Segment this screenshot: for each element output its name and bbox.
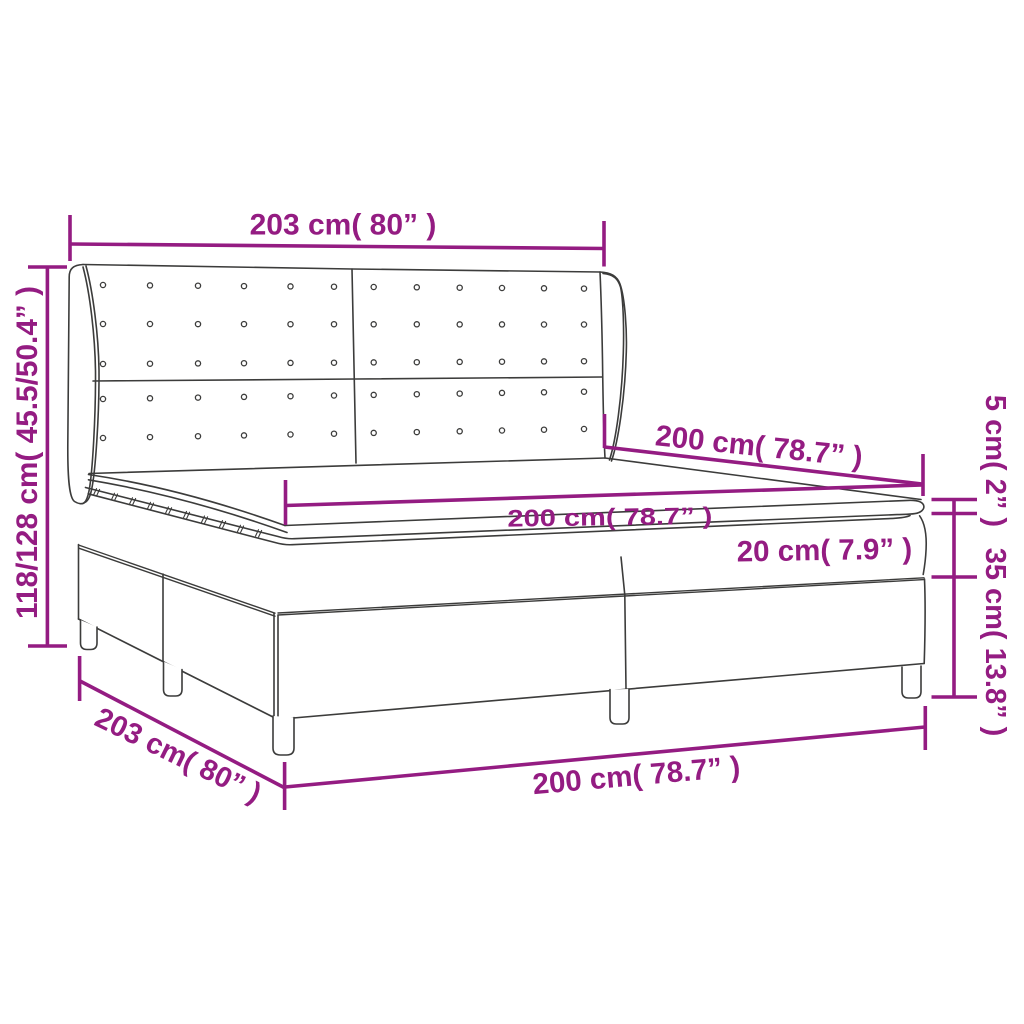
svg-text:35 cm( 13.8” ): 35 cm( 13.8” ) <box>979 548 1011 737</box>
svg-text:20 cm( 7.9” ): 20 cm( 7.9” ) <box>736 532 912 568</box>
svg-text:203 cm( 80” ): 203 cm( 80” ) <box>250 209 437 242</box>
svg-text:118/128 cm( 45.5/50.4” ): 118/128 cm( 45.5/50.4” ) <box>11 286 44 619</box>
svg-text:5 cm( 2” ): 5 cm( 2” ) <box>979 395 1011 527</box>
svg-text:200 cm( 78.7” ): 200 cm( 78.7” ) <box>507 502 712 532</box>
